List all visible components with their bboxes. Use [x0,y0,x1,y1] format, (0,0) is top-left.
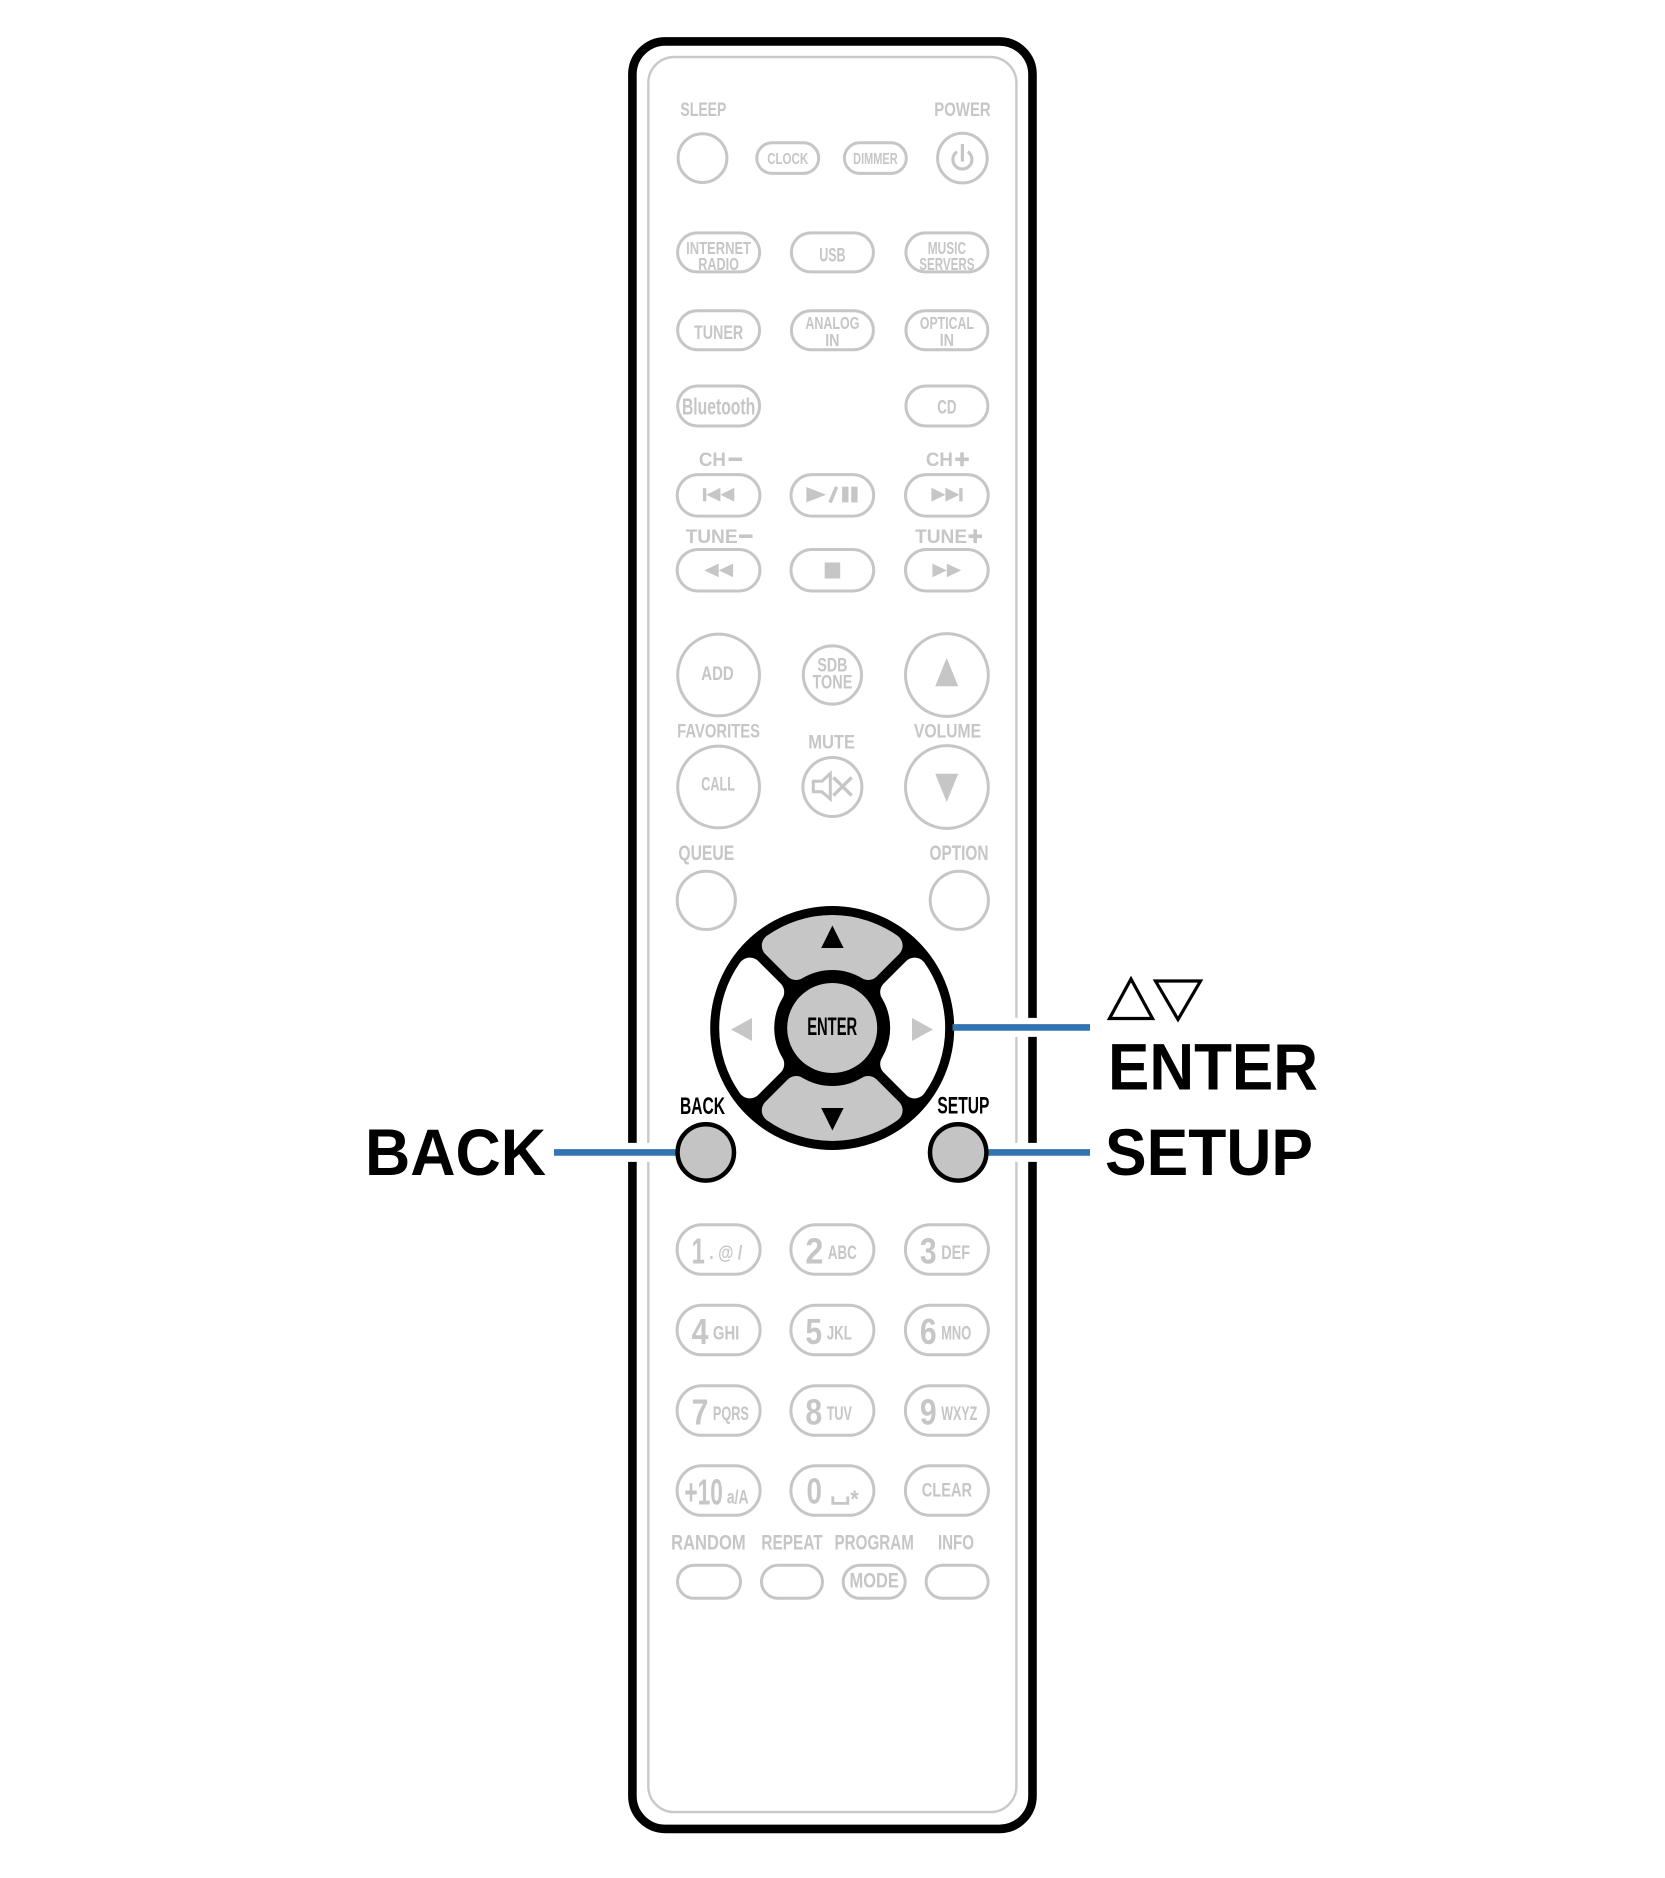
svg-text:CALL: CALL [701,775,735,796]
svg-text:TUNE: TUNE [686,527,738,548]
svg-text:TONE: TONE [812,673,852,694]
svg-text:USB: USB [819,245,845,266]
svg-text:+10: +10 [684,1471,723,1512]
svg-text:RANDOM: RANDOM [671,1531,746,1554]
svg-text:SETUP: SETUP [1105,1116,1313,1189]
svg-text:MUTE: MUTE [808,733,855,754]
svg-text:DEF: DEF [941,1243,970,1264]
svg-text:1: 1 [692,1230,705,1271]
svg-text:ADD: ADD [701,664,734,685]
svg-text:a/A: a/A [727,1487,749,1508]
svg-text:IN: IN [825,330,839,350]
svg-text:JKL: JKL [827,1323,852,1344]
svg-text:RADIO: RADIO [698,254,739,274]
svg-text:OPTION: OPTION [930,842,989,865]
svg-text:CLEAR: CLEAR [922,1481,973,1502]
svg-text:*: * [850,1486,859,1513]
svg-text:ENTER: ENTER [1108,1031,1318,1104]
svg-text:GHI: GHI [713,1323,739,1344]
svg-text:6: 6 [920,1311,937,1352]
svg-text:CD: CD [937,397,956,418]
svg-text:5: 5 [805,1311,822,1352]
svg-text:0: 0 [807,1470,823,1511]
svg-text:2: 2 [805,1230,823,1271]
svg-text:ABC: ABC [828,1243,857,1264]
svg-text:TUNER: TUNER [694,323,743,344]
svg-text:CLOCK: CLOCK [767,151,808,168]
svg-text:WXYZ: WXYZ [941,1404,977,1425]
svg-text:VOLUME: VOLUME [914,722,981,743]
svg-text:BACK: BACK [680,1093,725,1120]
svg-text:3: 3 [920,1230,937,1271]
svg-text:PROGRAM: PROGRAM [835,1531,914,1554]
svg-text:Bluetooth: Bluetooth [682,394,755,420]
svg-text:QUEUE: QUEUE [678,842,734,865]
svg-text:SETUP: SETUP [937,1092,989,1119]
svg-text:9: 9 [920,1391,937,1432]
svg-text:DIMMER: DIMMER [853,151,898,168]
svg-text:BACK: BACK [365,1116,546,1189]
svg-text:SERVERS: SERVERS [919,254,974,274]
svg-text:MNO: MNO [941,1323,971,1344]
svg-text:CH: CH [926,450,953,471]
svg-text:4: 4 [692,1311,709,1352]
svg-text:ENTER: ENTER [807,1014,857,1041]
svg-text:FAVORITES: FAVORITES [677,722,760,743]
svg-text:TUV: TUV [827,1404,852,1425]
svg-text:TUNE: TUNE [915,527,967,548]
svg-text:7: 7 [692,1391,709,1432]
svg-text:. @ /: . @ / [709,1243,743,1264]
svg-text:8: 8 [805,1391,822,1432]
svg-text:POWER: POWER [934,100,991,121]
svg-text:REPEAT: REPEAT [761,1531,822,1554]
svg-text:INFO: INFO [938,1531,974,1554]
svg-text:SLEEP: SLEEP [680,100,726,121]
svg-text:IN: IN [940,330,954,350]
svg-text:PQRS: PQRS [713,1404,749,1425]
svg-text:MODE: MODE [850,1570,899,1593]
svg-text:CH: CH [699,450,726,471]
